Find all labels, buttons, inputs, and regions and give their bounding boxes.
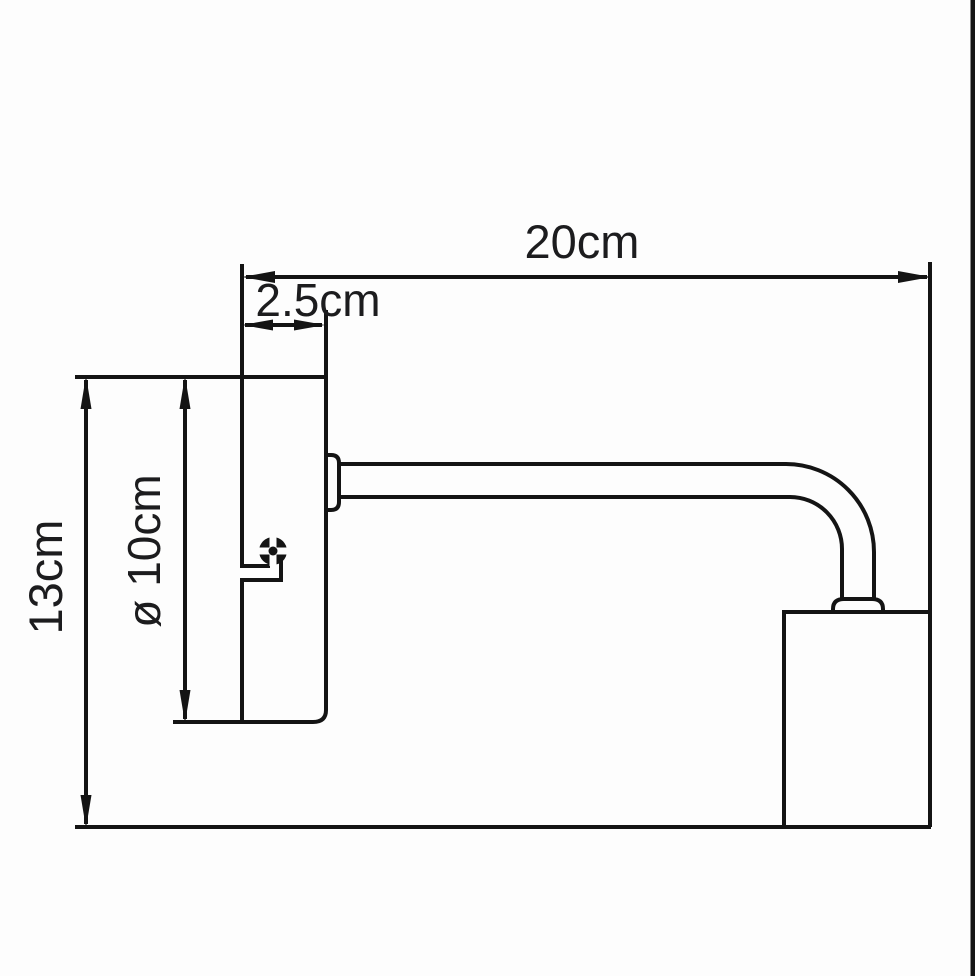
arrow-right-icon (898, 271, 931, 283)
lamp-head-outline (784, 612, 930, 827)
dimension-label-overall-height: 13cm (19, 520, 72, 635)
arrow-up-icon (180, 376, 191, 409)
dimension-label-plate-diameter: ø 10cm (118, 474, 170, 627)
arrow-down-icon (180, 690, 191, 723)
arrow-down-icon (81, 795, 92, 828)
mounting-plate-outline (173, 310, 326, 722)
screw-icon (258, 536, 288, 566)
lamp-arm-outer-line (337, 464, 874, 601)
dimension-label-overall-width: 20cm (525, 215, 640, 268)
lamp-arm-inner-line (337, 497, 842, 601)
wall-lamp-technical-drawing: 20cm 2.5cm 13cm ø 10cm (0, 0, 975, 976)
dimension-label-plate-thickness: 2.5cm (255, 274, 380, 326)
arrow-up-icon (81, 376, 92, 409)
dimension-drawing: 20cm 2.5cm 13cm ø 10cm (0, 0, 975, 976)
